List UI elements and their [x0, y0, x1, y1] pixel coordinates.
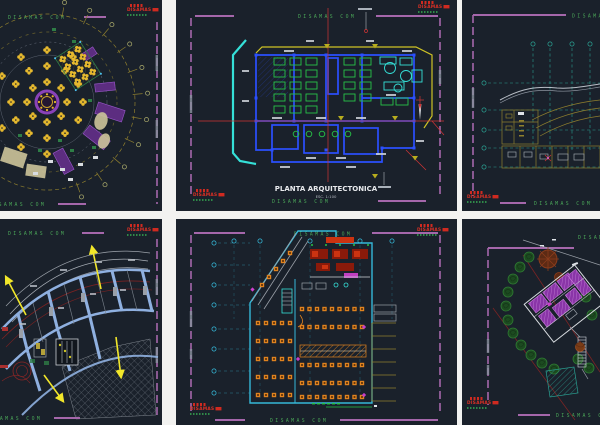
sheet-circular-resort-plan: DISAMAS COM: [0, 0, 162, 211]
cad-collage: { "watermark": { "text": "DISAMAS COM" }…: [0, 0, 600, 425]
north-arrow: [416, 96, 424, 120]
logo-text: DISAMAS: [127, 8, 153, 12]
kitchen-equipment: [380, 57, 422, 92]
watermark-text: DISAMAS COM: [272, 199, 330, 205]
fan-plan: [0, 247, 158, 419]
dining-tables-left: [256, 321, 292, 397]
pilasters: [19, 286, 147, 338]
watermark-bottom: DISAMAS COM: [0, 416, 80, 422]
planters: [293, 131, 351, 137]
sheet-border: [156, 22, 158, 204]
sheet-curved-plan: DISAMAS COM DISAMAS COM: [462, 0, 600, 211]
watermark-top: DISAMAS COM: [8, 15, 106, 21]
watermark-text: DISAMAS COM: [8, 15, 66, 21]
sheet-border: [190, 16, 441, 201]
disamas-logo: DISAMAS: [127, 224, 157, 236]
title-block: PLANTA ARQUITECTONICA ESC. 1:100: [275, 185, 378, 199]
center-court: [36, 91, 58, 113]
sheet-title: PLANTA ARQUITECTONICA: [275, 185, 378, 193]
mid-furnishing: [250, 283, 348, 327]
watermark-bottom: DISAMAS COM: [0, 202, 86, 208]
parking-annex: [372, 305, 396, 401]
disamas-logo: DISAMAS: [418, 1, 448, 13]
disamas-logo: DISAMAS: [190, 403, 220, 415]
column-grid: [482, 42, 600, 169]
logo-url-line: [127, 14, 148, 16]
garden-tree-cluster: [576, 343, 585, 352]
lobby-doors: [56, 339, 78, 365]
watermark-text: DISAMAS COM: [298, 14, 356, 20]
disamas-logo: DISAMAS: [467, 191, 497, 203]
sheet-banquet-hall-plan: DISAMAS COM DISAMAS COM: [176, 219, 457, 425]
watermark-text: DISAMAS COM: [8, 231, 66, 237]
watermark-text: DISAMAS COM: [0, 416, 42, 422]
sheet-border: [156, 239, 158, 417]
dining-tables-right: [300, 307, 366, 399]
watermark-text: DISAMAS COM: [556, 413, 600, 419]
sheet-planta-arquitectonica: DISAMAS COM DISAMAS COM: [176, 0, 457, 211]
disamas-logo: DISAMAS: [193, 189, 223, 201]
watermark-top: DISAMAS COM: [8, 231, 104, 237]
watermark-text: DISAMAS COM: [0, 202, 46, 208]
watermark-text: DISAMAS COM: [294, 232, 352, 238]
ramp-lines: [252, 233, 308, 309]
left-rooms: [0, 327, 49, 368]
sheet-scale: ESC. 1:100: [316, 194, 337, 199]
disamas-logo: DISAMAS: [467, 397, 497, 409]
disamas-logo: DISAMAS: [127, 4, 157, 16]
watermark-text: DISAMAS COM: [534, 201, 592, 207]
radial-grid-spokes: [62, 0, 150, 199]
sheet-site-plan: DISAMAS COM DISAMAS COM: [462, 219, 600, 425]
hatched-plaza: [546, 367, 578, 397]
column-grid: [212, 239, 394, 399]
watermark-text: DISAMAS COM: [572, 14, 600, 20]
disamas-logo: DISAMAS: [417, 224, 447, 236]
watermark-text: DISAMAS COM: [270, 418, 328, 424]
watermark-text: DISAMAS COM: [578, 235, 600, 241]
circular-plan: [0, 0, 150, 199]
sheet-fan-plan: DISAMAS COM: [0, 219, 162, 425]
accents: [296, 325, 366, 397]
